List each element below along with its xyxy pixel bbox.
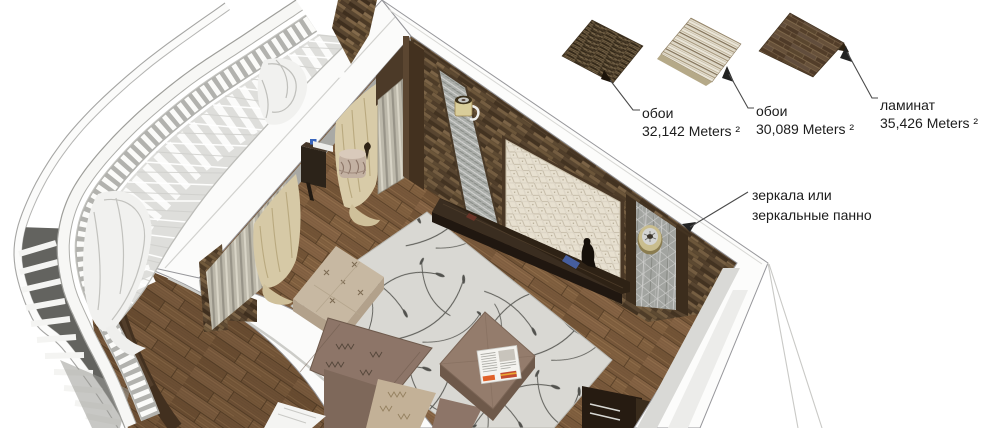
svg-text:обои: обои [642, 105, 673, 121]
svg-text:35,426 Meters ²: 35,426 Meters ² [880, 115, 978, 131]
svg-text:32,142 Meters ²: 32,142 Meters ² [642, 123, 740, 139]
svg-text:обои: обои [756, 103, 787, 119]
svg-text:зеркальные панно: зеркальные панно [752, 207, 872, 223]
svg-text:ламинат: ламинат [880, 97, 936, 113]
svg-text:30,089 Meters ²: 30,089 Meters ² [756, 121, 854, 137]
svg-text:зеркала или: зеркала или [752, 187, 832, 203]
